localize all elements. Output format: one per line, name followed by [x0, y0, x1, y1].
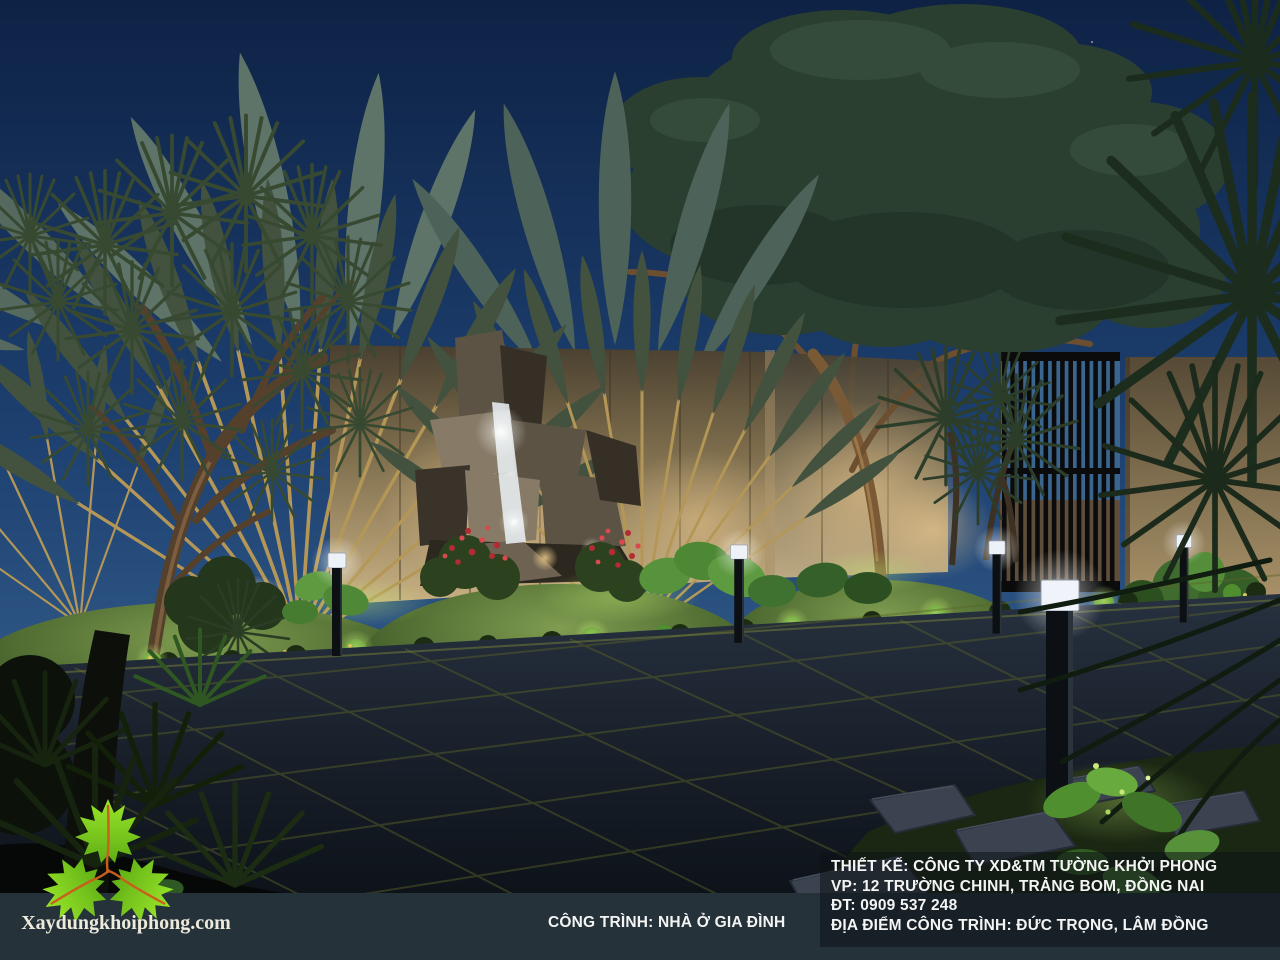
- phone-line: ĐT: 0909 537 248: [831, 896, 1276, 916]
- site-line: ĐỊA ĐIỂM CÔNG TRÌNH: ĐỨC TRỌNG, LÂM ĐỒNG: [831, 916, 1276, 936]
- office-line: VP: 12 TRƯỜNG CHINH, TRẢNG BOM, ĐỒNG NAI: [831, 877, 1276, 897]
- project-title: CÔNG TRÌNH: NHÀ Ở GIA ĐÌNH: [548, 914, 785, 932]
- render-poster: THIẾT KẾ: CÔNG TY XD&TM TƯỜNG KHỞI PHONG…: [0, 0, 1280, 960]
- designer-line: THIẾT KẾ: CÔNG TY XD&TM TƯỜNG KHỞI PHONG: [831, 857, 1276, 877]
- waterfall-light: [475, 406, 527, 458]
- company-info-block: THIẾT KẾ: CÔNG TY XD&TM TƯỜNG KHỞI PHONG…: [831, 857, 1276, 935]
- star: [1091, 41, 1093, 43]
- website-label: Xaydungkhoiphong.com: [16, 912, 236, 935]
- company-logo: Xaydungkhoiphong.com: [28, 793, 218, 953]
